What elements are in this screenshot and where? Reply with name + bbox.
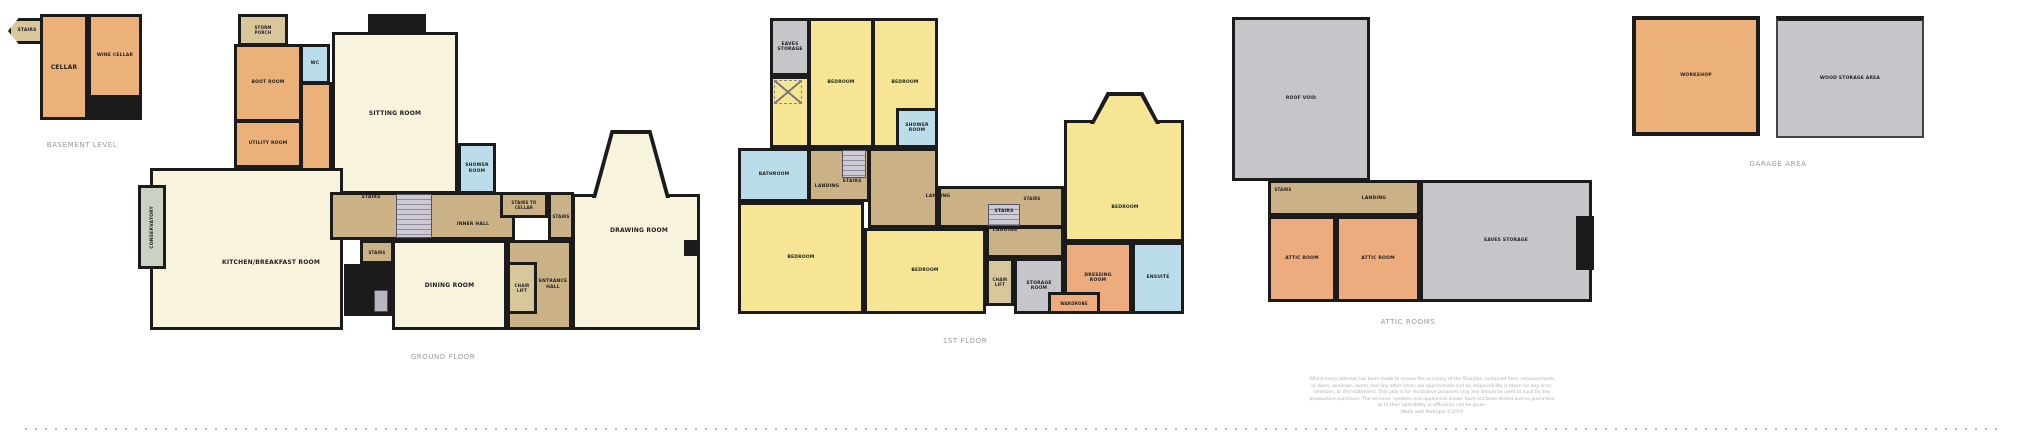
- first-chair-lift: CHAIR LIFT: [986, 258, 1014, 306]
- drawing-room-bay-floor: [596, 134, 666, 198]
- wardrobe-label: WARDROBE: [1060, 301, 1088, 306]
- first-stairs-1-treads: [842, 150, 866, 178]
- first-stairs-2-label: STAIRS: [988, 209, 1020, 215]
- workshop-label: WORKSHOP: [1680, 73, 1711, 79]
- attic-eaves-storage-label: EAVES STORAGE: [1484, 238, 1528, 244]
- bathroom-label: BATHROOM: [759, 172, 790, 178]
- conservatory-label: CONSERVATORY: [149, 206, 156, 249]
- wine-cellar-label: WINE CELLAR: [97, 53, 133, 59]
- attic-room-1: ATTIC ROOM: [1268, 216, 1336, 302]
- attic-landing: LANDING: [1268, 180, 1420, 216]
- first-eaves-storage: EAVES STORAGE: [770, 18, 810, 76]
- kitchen-breakfast-room-label: KITCHEN/BREAKFAST ROOM: [203, 259, 339, 266]
- storm-porch-room: STORM PORCH: [238, 14, 288, 46]
- drawing-room: DRAWING ROOM: [572, 194, 700, 330]
- first-stairs-2-treads: [988, 204, 1020, 226]
- bedroom-1-label: BEDROOM: [827, 80, 854, 86]
- first-shower-room: SHOWER ROOM: [896, 108, 938, 148]
- sitting-room-chimney: [368, 14, 426, 34]
- stairs-to-cellar-label: STAIRS TO CELLAR: [507, 200, 541, 210]
- boot-room: BOOT ROOM: [234, 44, 302, 122]
- kitchen-stove: [374, 290, 388, 312]
- first-landing-1-label: LANDING: [806, 184, 848, 190]
- cellar-label: CELLAR: [51, 64, 78, 71]
- ground-floor-caption: GROUND FLOOR: [411, 353, 476, 361]
- entrance-hall-label: ENTRANCE HALL: [536, 279, 570, 290]
- dining-room: DINING ROOM: [392, 240, 507, 330]
- inner-hall-label: INNER HALL: [441, 222, 505, 228]
- wood-storage-area: WOOD STORAGE AREA: [1776, 16, 1924, 138]
- ground-side-stairs: STAIRS: [548, 192, 574, 240]
- disclaimer-line: Whilst every attempt has been made to en…: [1282, 377, 1582, 384]
- utility-room: UTILITY ROOM: [234, 120, 302, 168]
- ground-shower-room-label: SHOWER ROOM: [464, 163, 490, 174]
- wardrobe-room: WARDROBE: [1048, 292, 1100, 314]
- bedroom-4-label: BEDROOM: [911, 268, 938, 274]
- ensuite-room: ENSUITE: [1132, 242, 1184, 314]
- boot-room-label: BOOT ROOM: [251, 80, 284, 86]
- first-stairs-1-label: STAIRS: [836, 179, 868, 185]
- roof-hatch-marker: [774, 80, 802, 104]
- bedroom-4: BEDROOM: [864, 228, 986, 314]
- wood-storage-area-label: WOOD STORAGE AREA: [1820, 76, 1880, 82]
- attic-caption: ATTIC ROOMS: [1381, 318, 1436, 326]
- basement-stairs-label: STAIRS: [17, 28, 36, 34]
- first-chair-lift-label: CHAIR LIFT: [989, 277, 1011, 287]
- ground-chair-lift-label: CHAIR LIFT: [511, 283, 533, 293]
- drawing-room-bay-window: [592, 130, 670, 198]
- first-floor-caption: 1ST FLOOR: [943, 337, 987, 345]
- storm-porch-label: STORM PORCH: [250, 25, 276, 35]
- ground-back-stairs: STAIRS: [360, 240, 394, 264]
- bedroom-1: BEDROOM: [808, 18, 874, 148]
- ground-stairs-side-label: STAIRS: [552, 214, 569, 219]
- attic-stairs-label: STAIRS: [1268, 187, 1298, 193]
- bedroom-3-label: BEDROOM: [787, 255, 814, 261]
- kitchen-breakfast-room: KITCHEN/BREAKFAST ROOM: [150, 168, 343, 330]
- sitting-room: SITTING ROOM: [332, 32, 458, 194]
- bedroom-2-label: BEDROOM: [891, 80, 918, 86]
- first-landing-2-label: LANDING: [916, 194, 960, 200]
- wc-label: WC: [311, 61, 320, 67]
- wine-cellar-room: WINE CELLAR: [88, 14, 142, 98]
- bedroom-5: BEDROOM: [1064, 120, 1184, 242]
- first-landing-3-label: LANDING: [984, 228, 1026, 234]
- basement-caption: BASEMENT LEVEL: [47, 141, 118, 149]
- first-landing-2-west: [868, 148, 938, 228]
- basement-solid-wall: [88, 96, 142, 120]
- page-cut-dotted-line: [25, 428, 2000, 430]
- ground-stairs-upper-label: STAIRS: [348, 195, 394, 201]
- garage-caption: GARAGE AREA: [1750, 160, 1807, 168]
- bedroom-5-bay-window: [1090, 92, 1160, 124]
- ground-chair-lift: CHAIR LIFT: [507, 262, 537, 314]
- cellar-room: CELLAR: [40, 14, 88, 120]
- roof-void-room: ROOF VOID: [1232, 17, 1370, 181]
- wc-room: WC: [300, 44, 330, 84]
- dining-room-label: DINING ROOM: [425, 282, 475, 289]
- disclaimer-credit: Made with Metropix ©2019: [1282, 410, 1582, 417]
- first-eaves-storage-label: EAVES STORAGE: [775, 42, 805, 53]
- drawing-room-fireplace: [684, 240, 700, 256]
- attic-landing-label: LANDING: [1349, 196, 1399, 202]
- bedroom-3: BEDROOM: [738, 202, 864, 314]
- stairs-to-cellar: STAIRS TO CELLAR: [500, 192, 548, 218]
- attic-room-1-label: ATTIC ROOM: [1285, 256, 1319, 262]
- bedroom-5-label: BEDROOM: [1097, 205, 1153, 211]
- attic-room-2-label: ATTIC ROOM: [1361, 256, 1395, 262]
- storage-room-label: STORAGE ROOM: [1021, 281, 1057, 292]
- ground-main-stairs-treads: [396, 194, 432, 238]
- ground-shower-room: SHOWER ROOM: [458, 143, 496, 194]
- bathroom: BATHROOM: [738, 148, 810, 202]
- sitting-room-label: SITTING ROOM: [369, 110, 421, 117]
- utility-room-label: UTILITY ROOM: [249, 141, 288, 147]
- attic-eaves-storage: EAVES STORAGE: [1420, 180, 1592, 302]
- ensuite-label: ENSUITE: [1147, 275, 1170, 281]
- workshop-room: WORKSHOP: [1632, 16, 1760, 136]
- conservatory-room: CONSERVATORY: [138, 185, 166, 269]
- attic-room-2: ATTIC ROOM: [1336, 216, 1420, 302]
- first-shower-room-label: SHOWER ROOM: [903, 123, 931, 134]
- disclaimer-line: omission, or mis-statement. This plan is…: [1282, 390, 1582, 397]
- floorplan-canvas: STAIRS CELLAR WINE CELLAR BASEMENT LEVEL…: [0, 0, 2025, 433]
- first-stairs-3-label: STAIRS: [1018, 196, 1046, 202]
- dressing-room-label: DRESSING ROOM: [1078, 273, 1118, 284]
- ground-stairs-lower-label: STAIRS: [368, 250, 385, 255]
- disclaimer-text: Whilst every attempt has been made to en…: [1282, 377, 1582, 416]
- roof-void-label: ROOF VOID: [1286, 96, 1316, 102]
- drawing-room-label: DRAWING ROOM: [593, 227, 685, 234]
- attic-chimney: [1576, 216, 1594, 270]
